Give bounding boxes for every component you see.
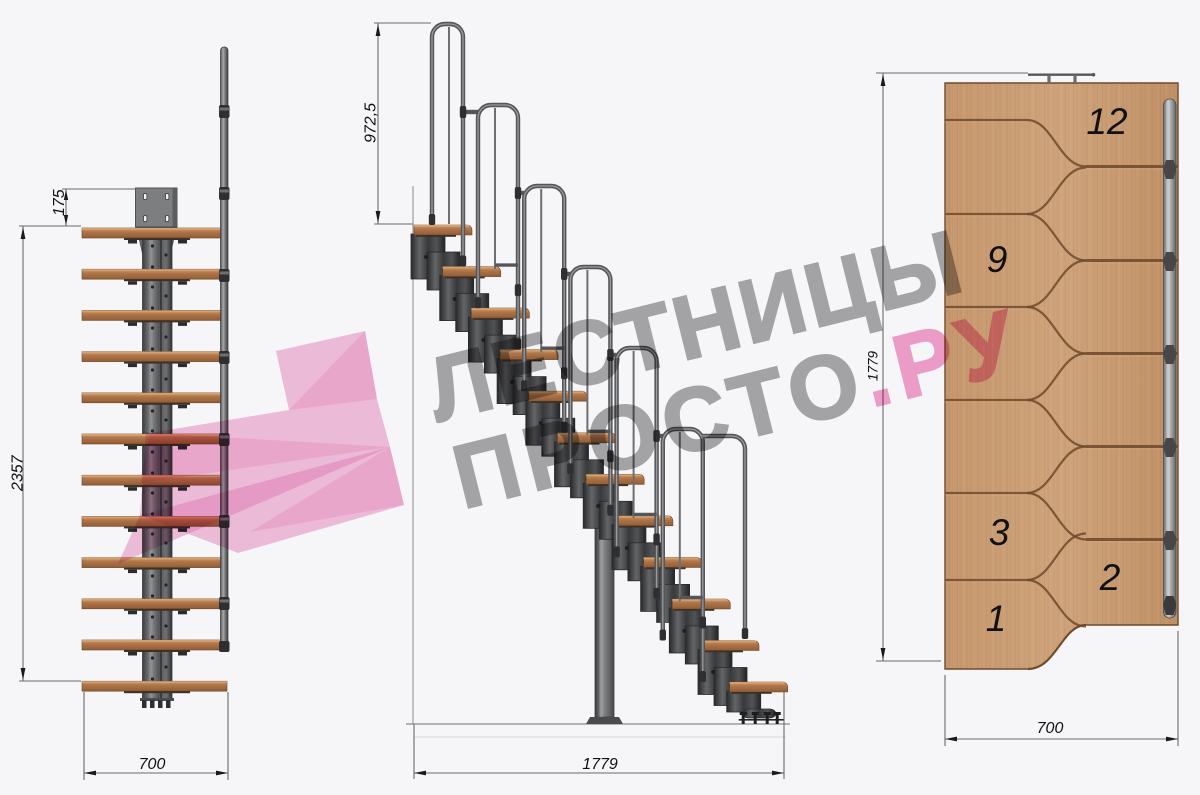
svg-text:2357: 2357 (10, 454, 27, 492)
svg-text:1779: 1779 (582, 756, 618, 773)
svg-text:9: 9 (987, 239, 1008, 280)
svg-text:3: 3 (989, 512, 1010, 553)
svg-text:1: 1 (986, 598, 1007, 639)
svg-text:972,5: 972,5 (363, 103, 380, 143)
svg-text:700: 700 (1037, 720, 1064, 737)
svg-text:2: 2 (1099, 557, 1121, 598)
svg-text:175: 175 (51, 189, 68, 216)
svg-text:12: 12 (1086, 101, 1128, 142)
svg-text:700: 700 (139, 756, 166, 773)
